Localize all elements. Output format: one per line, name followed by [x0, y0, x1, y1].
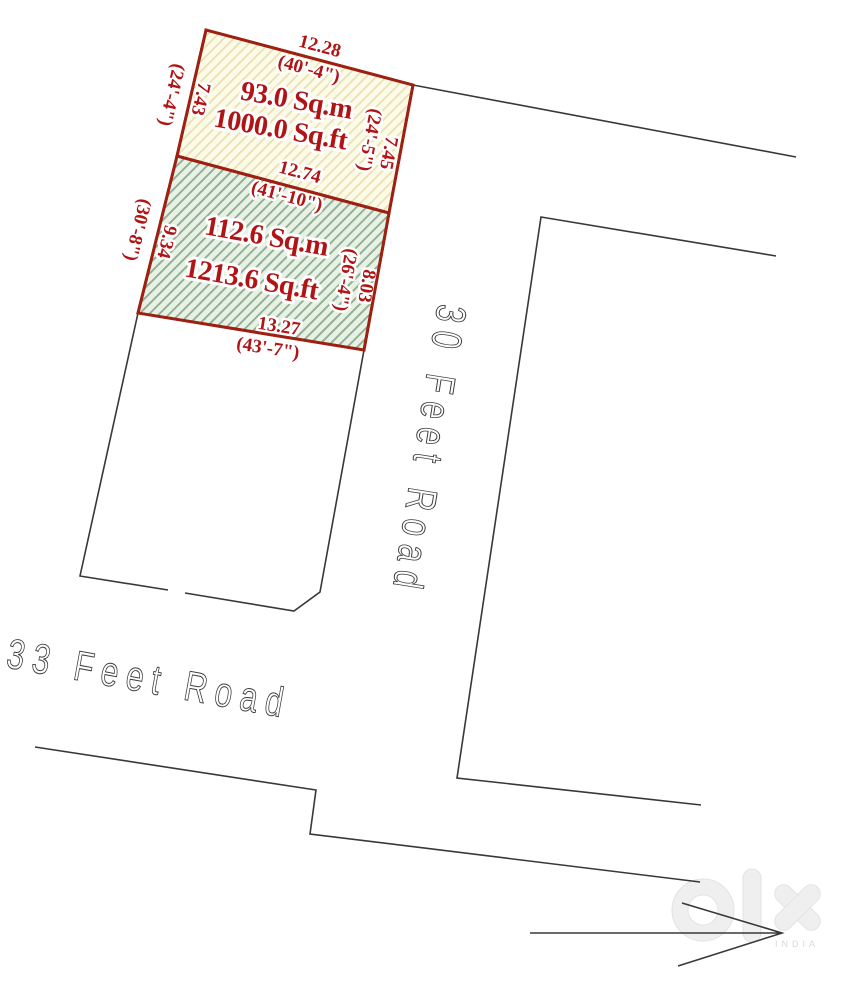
svg-text:INDIA: INDIA	[775, 939, 819, 949]
